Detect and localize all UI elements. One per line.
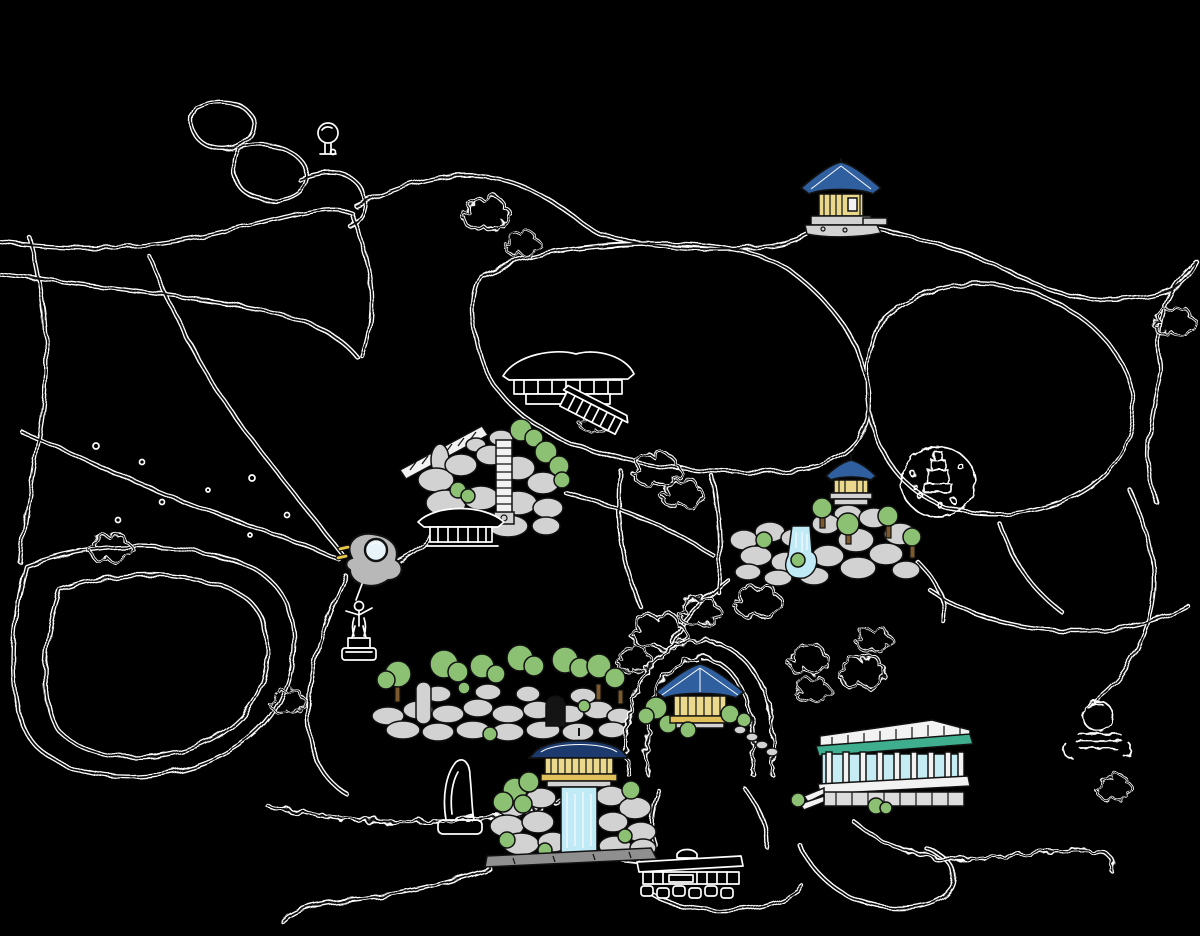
monument-enclosure <box>901 447 975 517</box>
statue <box>342 602 376 661</box>
park-map <box>0 0 1200 936</box>
rock-wall-cave <box>372 645 633 741</box>
stone-stairs <box>494 440 514 524</box>
waterfall-pagoda <box>485 728 657 867</box>
wall-rocks <box>372 682 633 741</box>
hilltop-pavilion <box>801 158 887 237</box>
hanok-sketch-lower <box>418 509 504 547</box>
mini-pagoda <box>826 454 876 505</box>
sculpture-lens <box>336 534 402 600</box>
conservatory <box>791 720 973 814</box>
hedge-lines <box>89 197 1196 869</box>
sphere-monument <box>1064 701 1131 758</box>
